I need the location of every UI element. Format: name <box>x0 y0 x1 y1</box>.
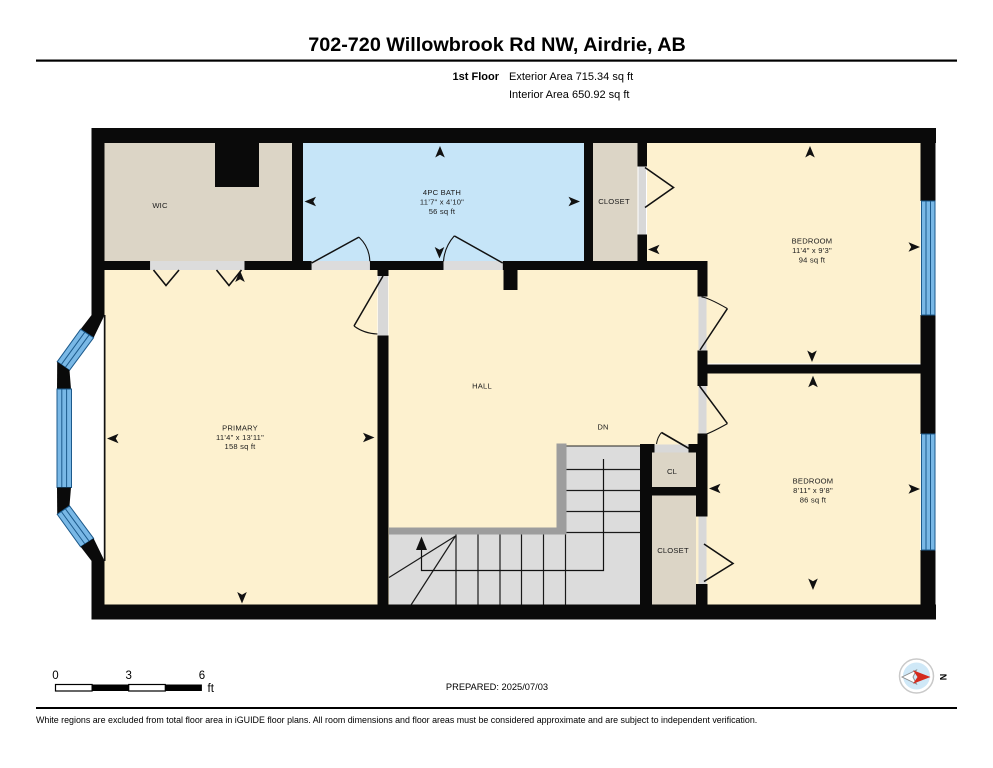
svg-text:PRIMARY: PRIMARY <box>222 424 258 433</box>
svg-text:N: N <box>938 674 948 681</box>
svg-text:158 sq ft: 158 sq ft <box>225 442 257 451</box>
svg-text:94 sq ft: 94 sq ft <box>799 256 826 265</box>
svg-text:White regions are excluded fro: White regions are excluded from total fl… <box>36 715 757 725</box>
svg-text:CLOSET: CLOSET <box>657 546 689 555</box>
svg-text:CL: CL <box>667 467 677 476</box>
svg-text:56 sq ft: 56 sq ft <box>429 207 456 216</box>
svg-text:HALL: HALL <box>472 382 492 391</box>
svg-text:11’4" x 9’3": 11’4" x 9’3" <box>792 246 832 255</box>
svg-text:11’4" x 13’11": 11’4" x 13’11" <box>216 433 264 442</box>
svg-text:11’7" x 4’10": 11’7" x 4’10" <box>420 198 464 207</box>
svg-text:ft: ft <box>208 683 215 695</box>
svg-text:WIC: WIC <box>152 201 168 210</box>
svg-text:Exterior Area 715.34 sq ft: Exterior Area 715.34 sq ft <box>509 71 633 83</box>
svg-text:3: 3 <box>125 670 131 682</box>
svg-text:4PC BATH: 4PC BATH <box>423 188 461 197</box>
svg-text:0: 0 <box>52 670 58 682</box>
svg-text:702-720 Willowbrook Rd NW, Air: 702-720 Willowbrook Rd NW, Airdrie, AB <box>308 34 686 56</box>
svg-text:BEDROOM: BEDROOM <box>793 477 834 486</box>
svg-text:1st Floor: 1st Floor <box>453 71 500 83</box>
svg-text:6: 6 <box>199 670 205 682</box>
svg-text:DN: DN <box>597 423 608 432</box>
svg-text:PREPARED: 2025/07/03: PREPARED: 2025/07/03 <box>446 682 548 692</box>
svg-text:CLOSET: CLOSET <box>598 197 630 206</box>
svg-text:86 sq ft: 86 sq ft <box>800 496 827 505</box>
svg-text:Interior Area 650.92 sq ft: Interior Area 650.92 sq ft <box>509 89 629 101</box>
svg-text:8’11" x 9’8": 8’11" x 9’8" <box>793 486 833 495</box>
svg-text:BEDROOM: BEDROOM <box>792 237 833 246</box>
